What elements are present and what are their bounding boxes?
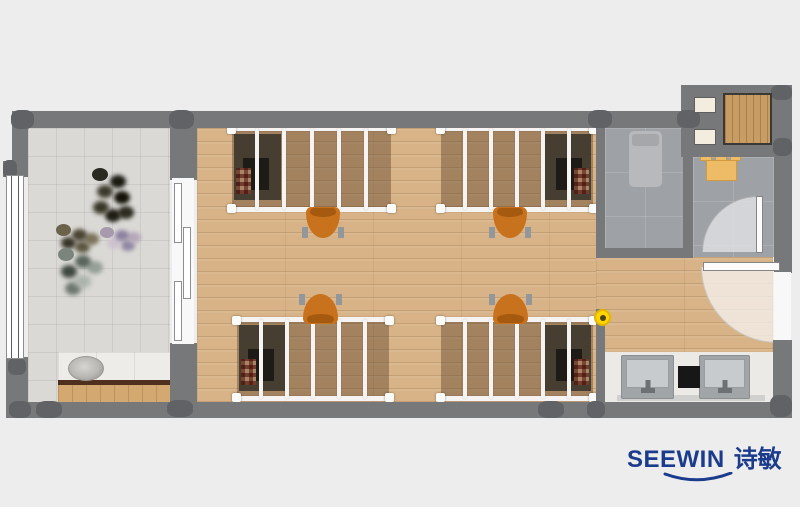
chair-armrest <box>302 227 308 238</box>
chair-armrest <box>489 294 495 305</box>
desk-chair-bottom-right <box>489 294 532 324</box>
wall-shower-left <box>596 127 605 258</box>
faucet-icon <box>645 380 650 393</box>
balcony-plant-cluster <box>100 227 114 238</box>
bed-guard-rail <box>541 128 545 210</box>
wall-toilet-right <box>774 157 792 258</box>
entry-door-leaf <box>703 262 780 271</box>
chair-armrest <box>489 227 495 238</box>
desk-chair-top-right <box>489 207 531 238</box>
desk-chair-bottom-left <box>299 294 342 324</box>
sliding-door-panel <box>183 227 191 299</box>
chair-back <box>310 208 336 217</box>
bed-post <box>436 204 445 213</box>
chair-back <box>307 314 334 323</box>
bed-post <box>385 393 394 402</box>
bed-guard-rail <box>285 319 289 399</box>
wall-balcony-divider-lower <box>170 343 197 403</box>
balcony-window <box>6 175 24 359</box>
wall-balcony-divider-upper <box>170 123 197 180</box>
structural-column <box>770 395 792 417</box>
shower-tray-head <box>632 134 659 146</box>
structural-column <box>8 358 26 375</box>
structural-column <box>587 401 605 418</box>
bed-post <box>232 393 241 402</box>
bed-guard-rail <box>364 128 368 210</box>
bed-post <box>232 316 241 325</box>
chair-armrest <box>338 227 344 238</box>
plaid-cushion <box>574 168 589 194</box>
loft-bed-bottom-left <box>233 317 393 401</box>
chair-armrest <box>299 294 305 305</box>
desk-chair-top-left <box>302 207 344 238</box>
bed-guard-rail <box>463 319 467 399</box>
laundry-sink <box>68 356 104 381</box>
wall-niche <box>694 97 716 113</box>
wash-sink <box>699 355 750 399</box>
wall-bottom <box>10 402 792 418</box>
plaid-cushion <box>574 359 589 385</box>
brand-logo: SEEWIN 诗敏 <box>627 443 782 477</box>
bed-post <box>436 393 445 402</box>
wall-niche <box>694 129 716 145</box>
plaid-cushion <box>241 359 256 385</box>
bed-guard-rail <box>337 319 341 399</box>
sliding-door-panel <box>174 183 182 243</box>
structural-column <box>11 110 34 129</box>
bed-post <box>227 204 236 213</box>
chair-armrest <box>526 294 532 305</box>
brand-wordmark-en-text: SEEWIN <box>627 446 725 473</box>
bed-guard-rail <box>541 319 545 399</box>
structural-column <box>771 85 792 100</box>
entry-side-window <box>774 272 791 340</box>
structural-column <box>9 401 31 418</box>
bed-guard-rail <box>567 128 571 210</box>
bed-guard-rail <box>515 319 519 399</box>
chair-back <box>497 208 523 217</box>
bed-post <box>387 204 396 213</box>
wash-sink <box>621 355 674 399</box>
storage-cabinet <box>723 93 772 145</box>
laundry-cabinet-front <box>58 385 170 402</box>
loft-bed-top-left <box>228 126 395 212</box>
bed-guard-rail <box>515 128 519 210</box>
brand-wordmark-en: SEEWIN <box>627 448 725 472</box>
bed-guard-rail <box>259 319 263 399</box>
brand-swoosh-icon <box>663 472 733 484</box>
loft-bed-top-right <box>437 126 597 212</box>
bed-guard-rail <box>489 319 493 399</box>
wall-shower-bottom <box>596 248 693 258</box>
door-stop-marker <box>594 309 611 326</box>
bed-guard-rail <box>489 128 493 210</box>
balcony-plant-cluster <box>56 224 71 236</box>
plaid-cushion <box>236 168 251 194</box>
structural-column <box>169 110 194 129</box>
bed-guard-rail <box>363 319 367 399</box>
chair-armrest <box>336 294 342 305</box>
waste-bin <box>678 366 700 388</box>
floorplan-image: SEEWIN 诗敏 <box>0 0 800 507</box>
structural-column <box>588 110 612 128</box>
toilet-door-leaf <box>756 196 763 253</box>
balcony-plant-cluster <box>92 168 108 181</box>
brand-wordmark-zh: 诗敏 <box>734 448 782 472</box>
bed-post <box>436 316 445 325</box>
bed-guard-rail <box>311 319 315 399</box>
bed-guard-rail <box>255 128 259 210</box>
structural-column <box>538 401 564 418</box>
loft-bed-bottom-right <box>437 317 597 401</box>
bed-guard-rail <box>337 128 341 210</box>
bed-guard-rail <box>282 128 286 210</box>
structural-column <box>167 400 193 417</box>
wall-shower-toilet-divider <box>683 127 693 258</box>
structural-column <box>773 138 792 156</box>
faucet-icon <box>722 380 727 393</box>
balcony-plant-cluster <box>58 248 74 261</box>
sliding-door-panel <box>174 281 182 341</box>
bed-guard-rail <box>310 128 314 210</box>
bed-guard-rail <box>567 319 571 399</box>
chair-armrest <box>525 227 531 238</box>
structural-column <box>36 401 62 418</box>
chair-back <box>497 314 524 323</box>
bed-guard-rail <box>463 128 467 210</box>
toilet-fixture <box>706 160 737 181</box>
bed-post <box>385 316 394 325</box>
